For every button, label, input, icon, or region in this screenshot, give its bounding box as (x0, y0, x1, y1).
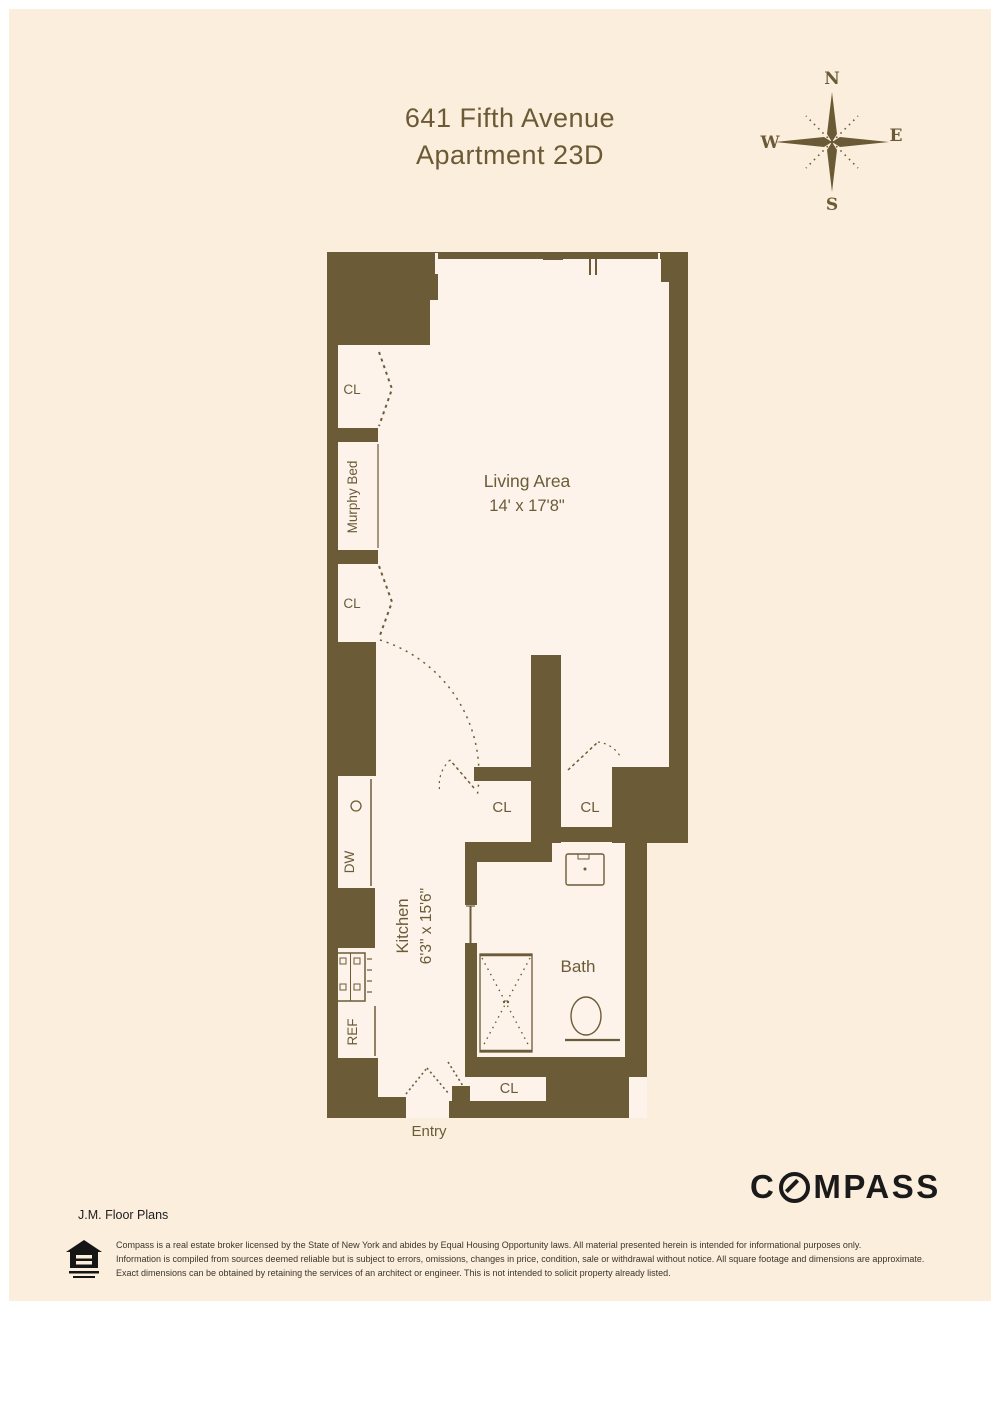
disclaimer-line: Exact dimensions can be obtained by reta… (116, 1266, 924, 1280)
wall-segment (327, 428, 378, 442)
wall-segment (438, 252, 688, 259)
compass-west-label: W (759, 133, 780, 153)
shower-drain (503, 1001, 505, 1003)
compass-logo-suffix: MPASS (813, 1168, 940, 1206)
wall-segment (465, 943, 477, 1057)
shower-drain (507, 1001, 509, 1003)
closet-label: CL (343, 596, 361, 611)
closet-label: CL (492, 799, 511, 816)
wall-segment (327, 252, 430, 345)
compass-o-icon (779, 1172, 810, 1203)
kitchen-label: Kitchen (394, 898, 412, 953)
wall-segment (552, 827, 625, 842)
kitchen-dims: 6'3" x 15'6" (418, 888, 435, 964)
compass-rose: N S W E (757, 64, 907, 214)
closet-label: CL (500, 1081, 519, 1097)
wall-segment (465, 862, 477, 905)
murphy-bed-label: Murphy Bed (345, 461, 360, 534)
window-jamb (658, 253, 660, 275)
bath-label: Bath (561, 957, 596, 976)
wall-segment (452, 1086, 470, 1102)
bath-sink-drain (584, 868, 587, 871)
wall-segment (327, 642, 376, 776)
window-mullion (595, 259, 597, 275)
address-line: 641 Fifth Avenue (310, 100, 710, 137)
wall-segment (327, 888, 375, 948)
wall-segment (327, 1097, 406, 1118)
wall-segment (669, 252, 688, 773)
floor-plan-drawing: Living Area 14' x 17'8" CL Murphy Bed CL… (322, 240, 694, 1140)
compass-south-label: S (826, 195, 838, 214)
refrigerator-label: REF (345, 1019, 360, 1046)
disclaimer-line: Compass is a real estate broker licensed… (116, 1238, 924, 1252)
equal-housing-icon (64, 1238, 104, 1282)
floor-plan-credit: J.M. Floor Plans (78, 1208, 168, 1222)
wall-segment (465, 842, 552, 862)
wall-segment (625, 830, 647, 1071)
page-title: 641 Fifth Avenue Apartment 23D (310, 100, 710, 174)
wall-segment (449, 1101, 550, 1118)
entry-label: Entry (411, 1123, 447, 1140)
window-jamb (435, 253, 438, 274)
wall-segment (327, 550, 378, 564)
compass-east-label: E (890, 126, 903, 146)
window-mullion (589, 259, 591, 275)
wall-segment (465, 1057, 647, 1077)
floor-plan-page: 641 Fifth Avenue Apartment 23D N S W E (0, 0, 1000, 1409)
living-area-label: Living Area (484, 471, 571, 491)
compass-rose-star (775, 92, 889, 192)
unit-line: Apartment 23D (310, 137, 710, 174)
window-sash (543, 258, 563, 260)
wall-segment (531, 655, 561, 843)
disclaimer-line: Information is compiled from sources dee… (116, 1252, 924, 1266)
disclaimer-text: Compass is a real estate broker licensed… (116, 1238, 924, 1280)
dishwasher-label: DW (342, 851, 357, 874)
compass-north-label: N (824, 69, 840, 89)
compass-logo: C MPASS (750, 1168, 941, 1206)
compass-logo-prefix: C (750, 1168, 776, 1206)
living-area-dims: 14' x 17'8" (489, 497, 565, 515)
closet-label: CL (343, 382, 361, 397)
closet-label: CL (580, 799, 599, 816)
disclaimer-block: Compass is a real estate broker licensed… (64, 1238, 954, 1282)
wall-segment (474, 767, 531, 781)
